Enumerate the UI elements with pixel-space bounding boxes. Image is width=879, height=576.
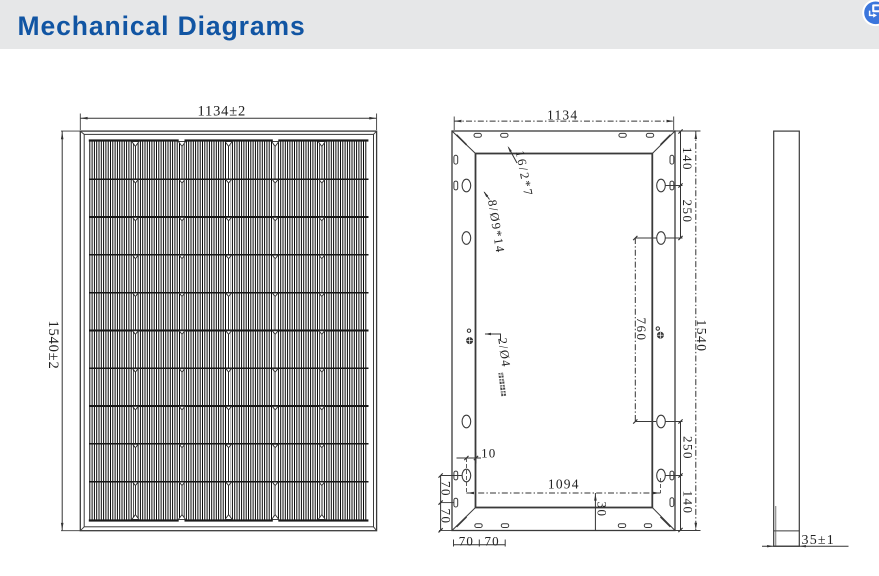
- svg-text:1540: 1540: [694, 320, 709, 353]
- svg-text:140: 140: [681, 491, 696, 515]
- svg-text:70: 70: [439, 509, 454, 525]
- svg-text:Mechanical Diagrams: Mechanical Diagrams: [18, 11, 306, 41]
- svg-text:70: 70: [439, 481, 454, 497]
- svg-text:250: 250: [681, 436, 696, 460]
- svg-text:140: 140: [680, 147, 695, 171]
- svg-text:1134: 1134: [547, 107, 578, 122]
- svg-text:250: 250: [680, 200, 695, 224]
- svg-text:10: 10: [481, 446, 496, 461]
- svg-text:30: 30: [595, 502, 610, 518]
- svg-text:35±1: 35±1: [802, 533, 835, 548]
- svg-text:70: 70: [484, 533, 499, 548]
- svg-text:1540±2: 1540±2: [45, 320, 61, 369]
- svg-text:1134±2: 1134±2: [198, 103, 246, 119]
- svg-text:760: 760: [634, 318, 649, 342]
- svg-text:70: 70: [459, 533, 474, 548]
- svg-text:1094: 1094: [548, 477, 580, 492]
